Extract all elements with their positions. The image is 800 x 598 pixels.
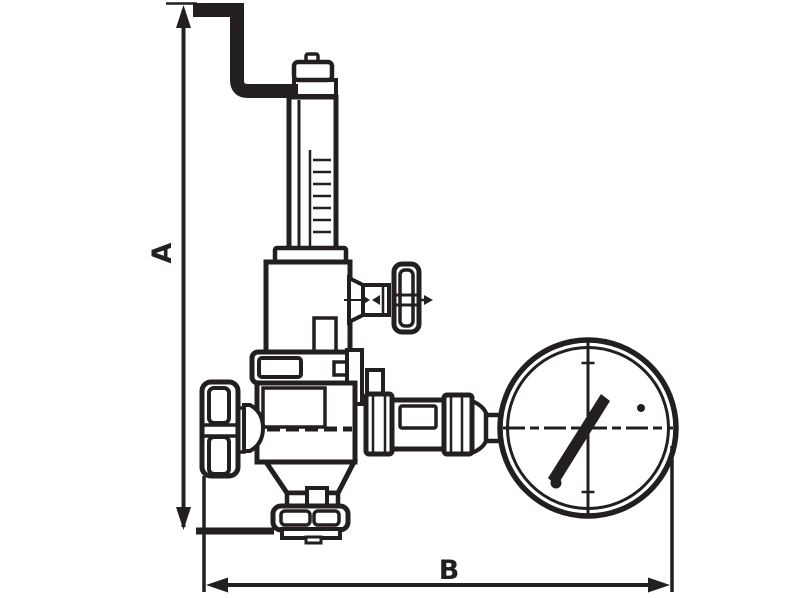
gauge-needle-hub [551, 478, 562, 489]
valve-technical-drawing: A [0, 0, 800, 598]
outlet-coupling [366, 394, 506, 454]
dimension-a-arrow-up [176, 5, 191, 28]
union-bottom-nub [306, 537, 321, 543]
pressure-gauge [500, 340, 676, 516]
technical-drawing-canvas: A [0, 0, 800, 598]
gauge-dial-screw [637, 404, 645, 412]
bent-pipe-handle [193, 10, 298, 91]
outlet-nut-1 [366, 394, 392, 454]
body-block [257, 383, 355, 462]
dimension-a-arrow-down [176, 507, 191, 530]
bonnet-tube [289, 97, 336, 252]
inlet-handwheel [202, 382, 263, 476]
valve-body [248, 383, 355, 508]
adjusting-locknut [294, 80, 336, 96]
bottom-union [196, 506, 348, 543]
adjusting-screw-cap [294, 62, 332, 80]
dimension-b-arrow-left [206, 578, 228, 593]
dimension-b-arrow-right [648, 578, 670, 593]
spring-bonnet-tube [289, 97, 336, 252]
dimension-a: A [147, 4, 197, 531]
inlet-gland [244, 405, 263, 451]
outlet-nut-2 [444, 395, 472, 454]
dimension-a-label: A [147, 242, 178, 263]
dimension-b-label: B [439, 555, 460, 586]
neck-block [307, 488, 327, 506]
bonnet-thread-hatching [313, 160, 331, 232]
relief-handwheel-rim [394, 264, 419, 332]
stem-center-arrow [424, 295, 433, 305]
